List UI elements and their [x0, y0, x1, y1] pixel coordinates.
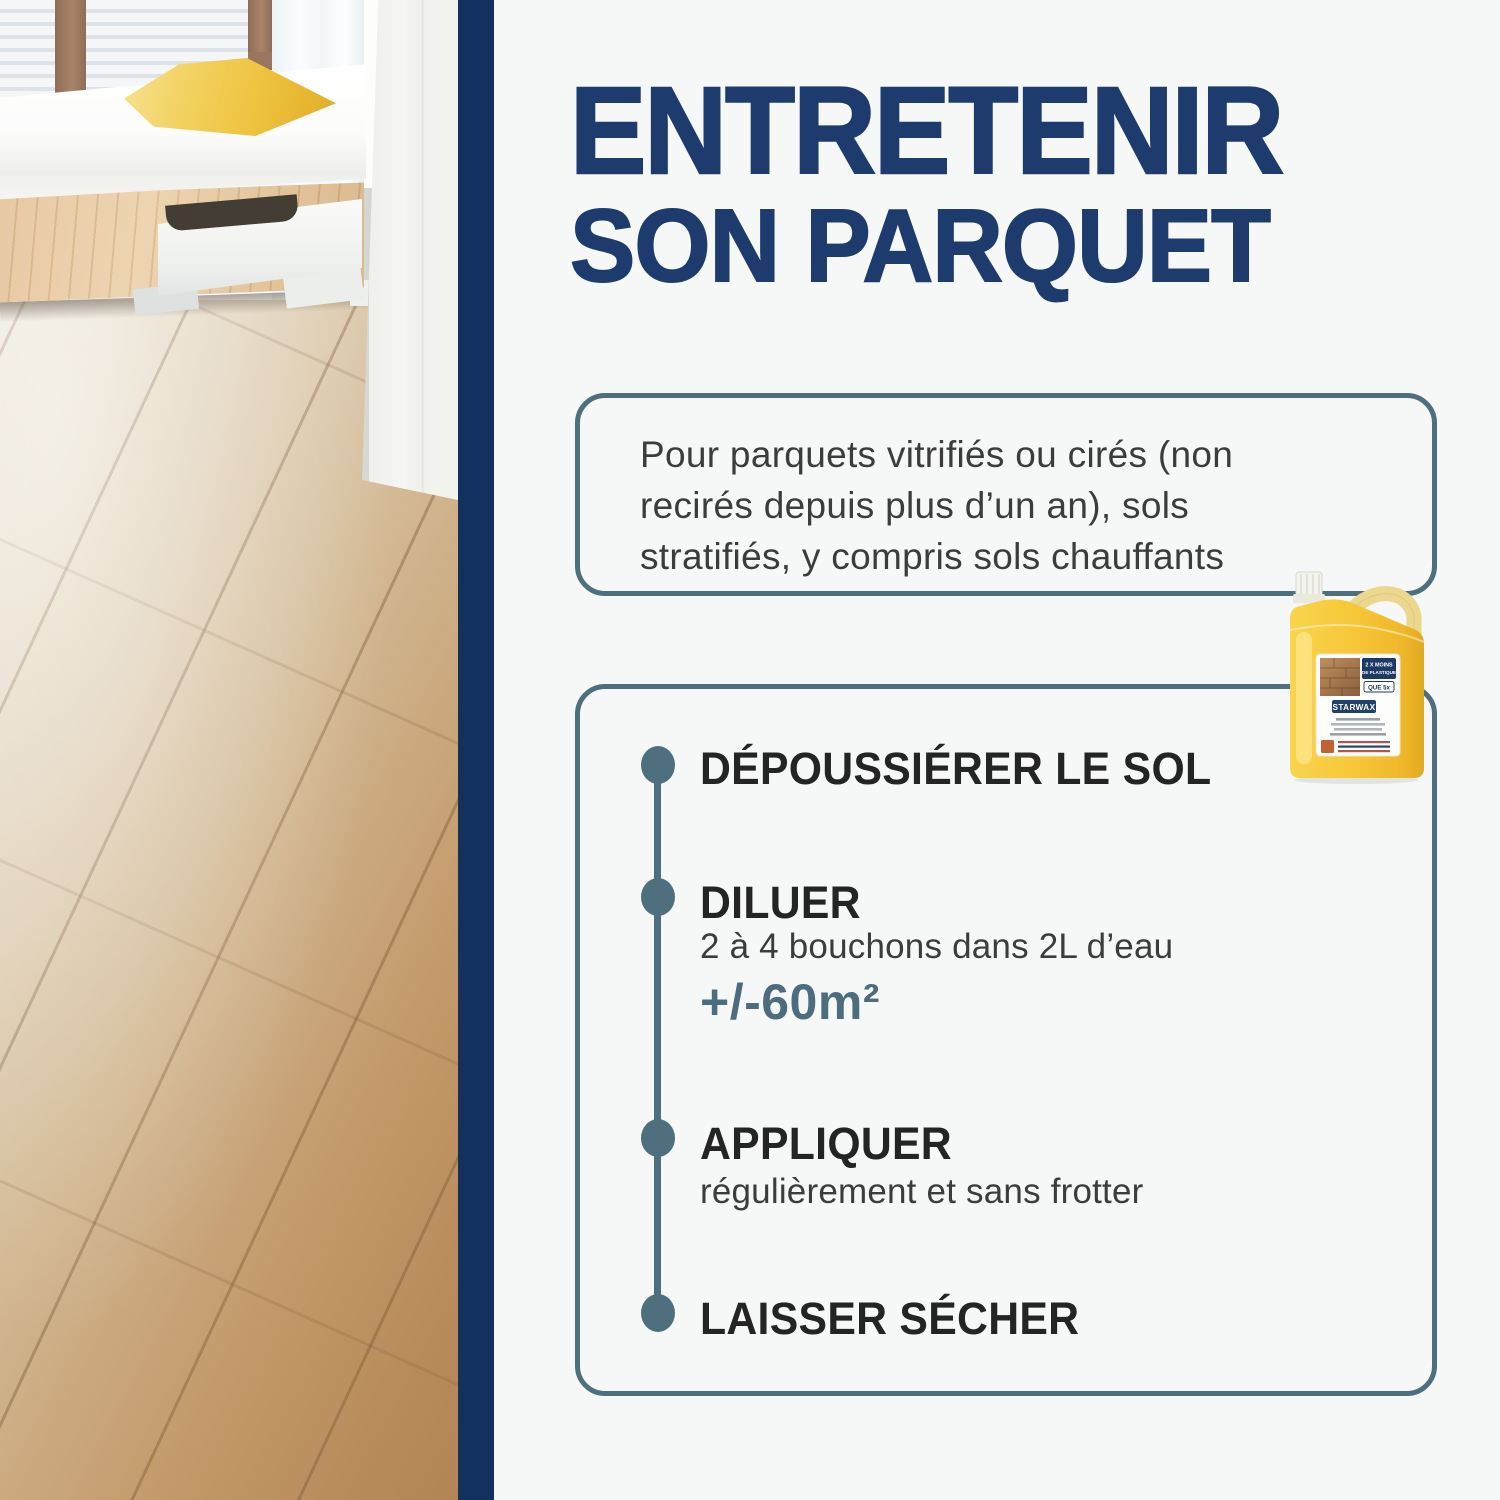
- step-title: DÉPOUSSIÉRER LE SOL: [700, 744, 1211, 794]
- step-title: APPLIQUER: [700, 1119, 952, 1169]
- bedroom-photo: [0, 0, 458, 1500]
- step-title: LAISSER SÉCHER: [700, 1294, 1079, 1344]
- intro-box: Pour parquets vitrifiés ou cirés (non re…: [575, 393, 1437, 596]
- infographic-page: ENTRETENIR SON PARQUET Pour parquets vit…: [0, 0, 1500, 1500]
- plastic-badge: [1362, 658, 1396, 679]
- label-text-bar: [1338, 746, 1390, 748]
- product-cap: [1296, 572, 1322, 596]
- badge-text-2: DE PLASTIQUE: [1362, 670, 1396, 675]
- product-label: 2 X MOINS DE PLASTIQUE QUE 5x STARWAX: [1316, 654, 1400, 756]
- intro-line: Pour parquets vitrifiés ou cirés (non: [640, 429, 1392, 480]
- step-title: DILUER: [700, 878, 861, 928]
- page-subtitle: SON PARQUET: [570, 194, 1270, 297]
- label-text-bar: [1336, 718, 1380, 721]
- label-text-bar: [1330, 733, 1386, 736]
- door-frame: [362, 0, 458, 500]
- step-bullet: [641, 746, 675, 784]
- label-hazard-square: [1321, 740, 1334, 753]
- step-bullet: [641, 1119, 675, 1157]
- intro-line: recirés depuis plus d’un an), sols: [640, 480, 1392, 531]
- window-frame-post: [55, 0, 86, 102]
- product-jug: 2 X MOINS DE PLASTIQUE QUE 5x STARWAX: [1280, 570, 1432, 786]
- step-detail: 2 à 4 bouchons dans 2L d’eau: [700, 926, 1173, 968]
- label-text-bar: [1331, 723, 1385, 726]
- timeline-line: [654, 765, 661, 1313]
- step-detail: régulièrement et sans frotter: [700, 1171, 1144, 1213]
- navy-divider-bar: [458, 0, 494, 1500]
- label-text-bar: [1334, 728, 1382, 731]
- label-text-bar: [1338, 741, 1390, 743]
- label-parquet-photo: [1320, 658, 1360, 696]
- body-highlight: [1296, 632, 1312, 764]
- product-brand: STARWAX: [1333, 703, 1376, 712]
- badge-text-1: 2 X MOINS: [1365, 663, 1393, 669]
- step-bullet: [641, 1294, 675, 1332]
- badge-text-3: QUE 5x: [1368, 685, 1391, 692]
- step-highlight-coverage: +/-60m²: [700, 973, 880, 1031]
- step-bullet: [641, 878, 675, 916]
- label-text-bar: [1338, 750, 1390, 752]
- page-title: ENTRETENIR: [570, 70, 1282, 193]
